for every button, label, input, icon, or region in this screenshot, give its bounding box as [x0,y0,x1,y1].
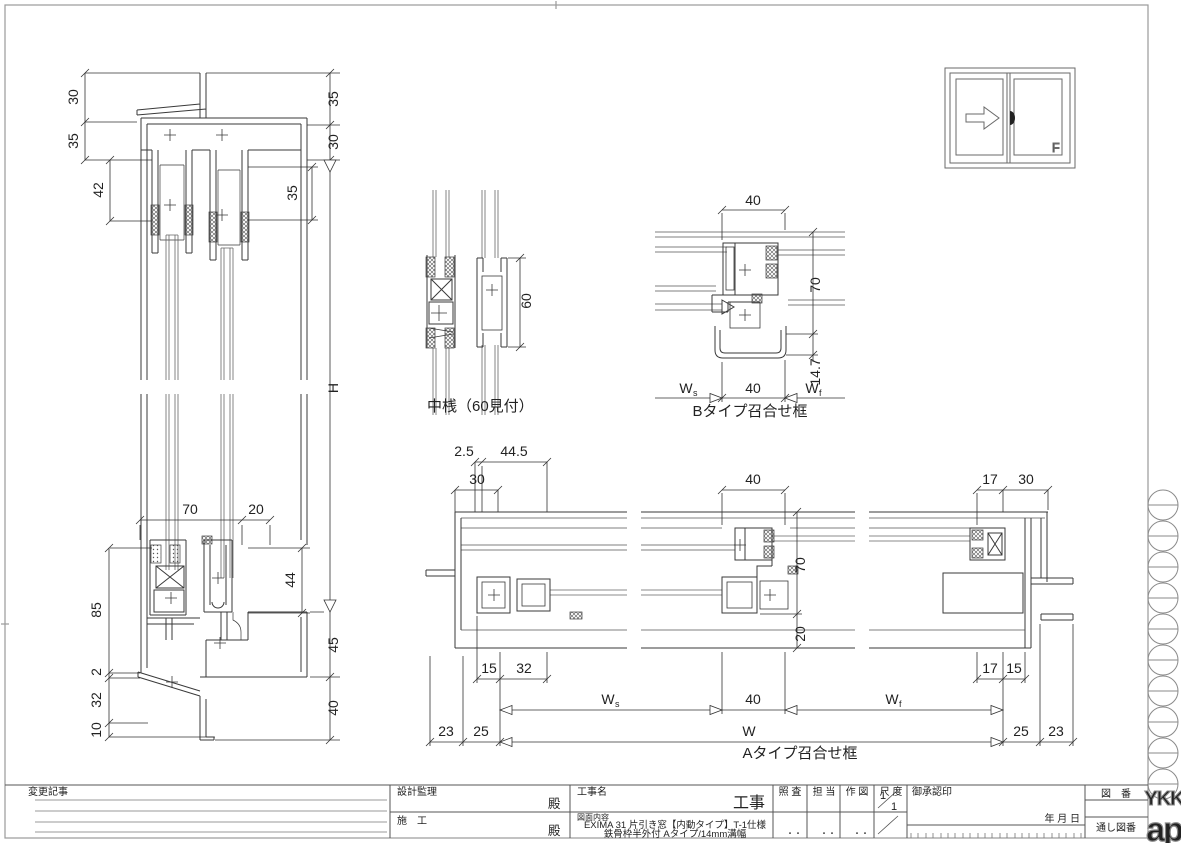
slide-direction-arrow-icon [966,107,999,129]
dim-label-wf: W [805,380,819,396]
section-label-nakazan: 中桟（60見付） [427,398,534,415]
drawing-number-label: 図 番 [1101,788,1131,800]
dim-label: 44 [282,572,298,588]
dim-label: 30 [325,134,341,150]
dim-label: 60 [518,293,534,309]
logo-ykk-text: YKK [1144,788,1181,810]
vertical-section-profile [137,73,307,740]
dim-label: 15 [1006,660,1022,676]
dim-label: 42 [90,182,106,198]
dim-label: 30 [469,471,485,487]
dim-label-ws-sub: s [693,388,698,398]
dim-label: 35 [65,133,81,149]
dim-label: 40 [745,192,761,208]
dim-label: 40 [325,700,341,716]
dim-label: 70 [182,501,198,517]
in-charge-label: 担 当 [813,785,836,798]
dim-label: 25 [1013,723,1029,739]
dim-label-ws: W [601,691,615,707]
dim-label: 2 [88,668,104,676]
date-label: 年 月 日 [1044,812,1080,825]
nakazan-section-profile [426,190,507,415]
dim-label: 20 [792,626,808,642]
dim-label: 35 [284,185,300,201]
dim-label: 40 [745,471,761,487]
section-label-atype: Aタイプ召合せ框 [742,745,857,762]
dim-label: 15 [481,660,497,676]
sheet-border [1,1,1148,838]
btype-section-dim-labels: 40 70 14.7 W s 40 W f Bタイプ召合せ框 [679,192,823,420]
dim-label: 70 [807,277,823,293]
binding-hole-marks [1148,490,1178,799]
logo-ap-text: ap [1146,811,1181,843]
dim-label-w: W [742,723,756,739]
ykk-ap-logo: YKK ap [1144,788,1181,843]
project-name-label: 工事名 [577,785,607,798]
check-label: 照 査 [779,785,802,798]
fixed-panel-label: F [1052,141,1060,155]
dim-label: 85 [88,602,104,618]
drawing-content-line2: 鉄骨枠半外付 Aタイプ/14mm溝幅 [604,828,747,840]
sign-dots: ・・ [853,829,869,838]
vertical-section-dim-labels: 30 35 42 35 30 35 H 70 20 85 44 2 32 10 … [65,89,341,738]
section-label-btype: Bタイプ召合せ框 [692,403,807,420]
atype-section-dim-labels: 2.5 44.5 30 40 17 30 70 20 15 32 17 15 W… [438,443,1064,762]
btype-section-profile [655,232,845,358]
project-name-value: 工事 [733,794,765,812]
atype-section-profile [426,512,1073,648]
dim-label: 45 [325,637,341,653]
design-supervision-label: 設計監理 [397,785,437,798]
dim-label: 70 [792,557,808,573]
dono-label-2: 殿 [548,824,561,838]
drawing-sheet: F [0,0,1181,843]
drawn-by-label: 作 図 [846,786,869,798]
scale-numerator: 1 [880,790,886,802]
construction-label: 施 工 [397,814,427,827]
dono-label-1: 殿 [548,797,561,811]
dim-label: 2.5 [454,443,474,459]
dim-label-wf: W [885,691,899,707]
dim-label-wf-sub: f [819,388,822,398]
cad-drawing-canvas: F [0,0,1181,843]
dim-label: 17 [982,660,998,676]
dim-label: 35 [325,91,341,107]
dim-label: 30 [1018,471,1034,487]
dim-label-ws: W [679,380,693,396]
change-notes-label: 変更記事 [28,785,68,798]
sign-dots: ・・ [786,829,802,838]
dim-label: 20 [248,501,264,517]
dim-label: 40 [745,380,761,396]
window-elevation-icon: F [945,68,1075,168]
dim-label: 32 [516,660,532,676]
dim-label-wf-sub: f [899,699,902,709]
dim-label: 10 [88,722,104,738]
dim-label-ws-sub: s [615,699,620,709]
dim-label: 44.5 [500,443,527,459]
dim-label: 17 [982,471,998,487]
dim-label: 40 [745,691,761,707]
dim-label: 30 [65,89,81,105]
scale-denominator: 1 [891,801,897,813]
approval-seal-label: 御承認印 [912,785,952,798]
dim-label-height: H [325,383,341,393]
serial-drawing-number-label: 通し図番 [1096,822,1136,834]
dim-label: 32 [88,692,104,708]
dim-label: 23 [438,723,454,739]
sign-dots: ・・ [820,829,836,838]
dim-label: 25 [473,723,489,739]
dim-label: 23 [1048,723,1064,739]
